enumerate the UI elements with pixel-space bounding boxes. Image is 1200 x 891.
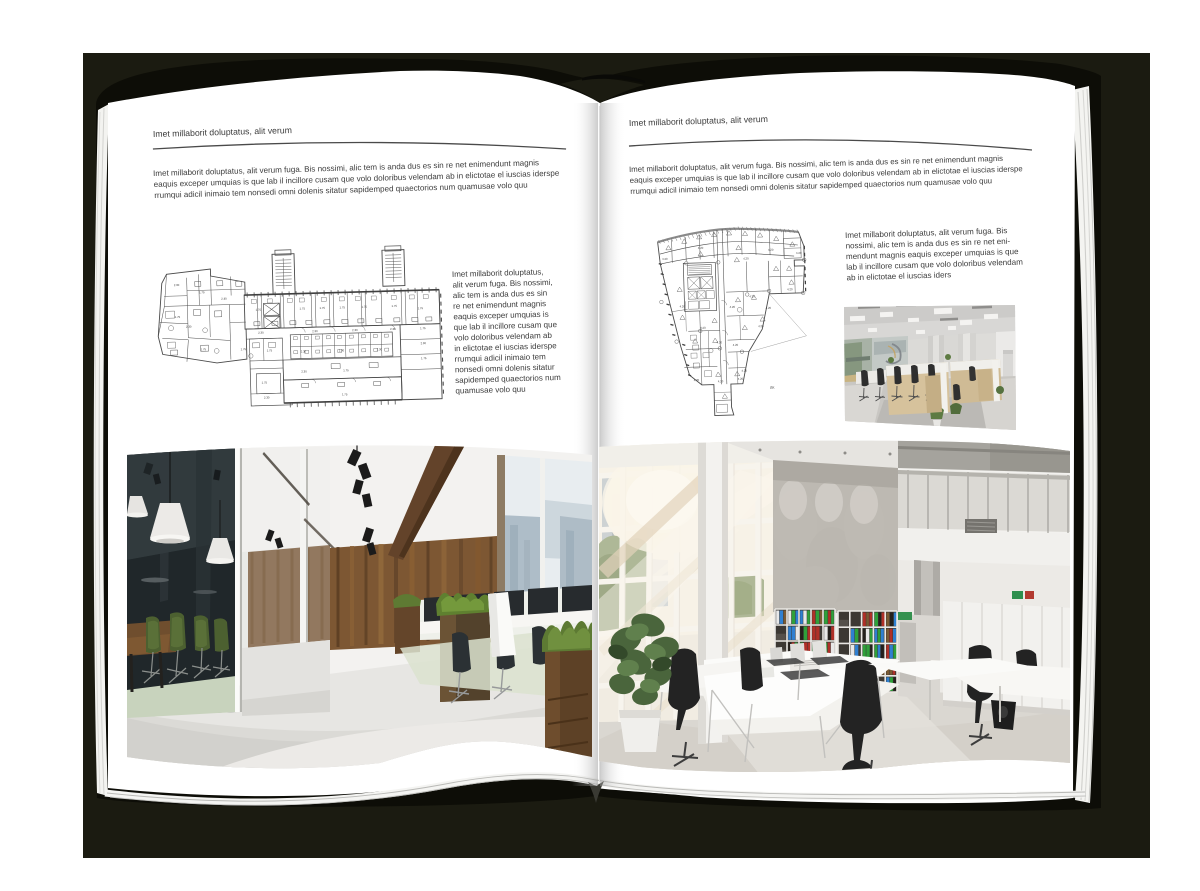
svg-text:4.20: 4.20 xyxy=(694,378,700,382)
svg-text:2.30: 2.30 xyxy=(186,325,192,329)
svg-text:Imet millaborit doluptatus,: Imet millaborit doluptatus, alit verum f… xyxy=(452,267,564,396)
svg-text:1.75: 1.75 xyxy=(342,392,348,396)
svg-text:4.20: 4.20 xyxy=(741,369,747,373)
svg-text:2.30: 2.30 xyxy=(258,331,264,335)
svg-text:1.75: 1.75 xyxy=(241,347,247,351)
svg-text:1.75: 1.75 xyxy=(267,348,273,352)
svg-text:4.20: 4.20 xyxy=(796,251,802,255)
svg-text:1.75: 1.75 xyxy=(255,308,261,312)
svg-text:1.75: 1.75 xyxy=(262,380,268,384)
svg-text:4.20: 4.20 xyxy=(698,246,704,250)
svg-text:2.30: 2.30 xyxy=(301,349,307,353)
svg-text:1.75: 1.75 xyxy=(199,290,205,294)
svg-text:2.30: 2.30 xyxy=(390,327,396,331)
svg-text:2.30: 2.30 xyxy=(420,341,426,345)
svg-text:2.30: 2.30 xyxy=(174,283,180,287)
svg-text:4.20: 4.20 xyxy=(768,248,774,252)
svg-text:2.30: 2.30 xyxy=(301,369,307,373)
svg-text:4.20: 4.20 xyxy=(662,257,668,261)
svg-text:2.30: 2.30 xyxy=(339,348,345,352)
svg-text:1.75: 1.75 xyxy=(421,356,427,360)
svg-text:2.30: 2.30 xyxy=(221,297,227,301)
svg-text:4.20: 4.20 xyxy=(743,256,749,260)
svg-text:1.75: 1.75 xyxy=(420,326,426,330)
svg-text:1.75: 1.75 xyxy=(418,306,424,310)
svg-text:1.75: 1.75 xyxy=(361,305,367,309)
svg-text:4.20: 4.20 xyxy=(700,326,706,330)
svg-text:4.20: 4.20 xyxy=(679,304,685,308)
svg-text:2.30: 2.30 xyxy=(264,395,270,399)
svg-text:4.20: 4.20 xyxy=(730,305,736,309)
svg-text:1.75: 1.75 xyxy=(391,304,397,308)
svg-text:4.20: 4.20 xyxy=(718,379,724,383)
svg-text:1.75: 1.75 xyxy=(175,315,181,319)
svg-text:4.20: 4.20 xyxy=(749,294,755,298)
svg-text:2.30: 2.30 xyxy=(312,329,318,333)
svg-text:4.20: 4.20 xyxy=(738,377,744,381)
svg-text:4.20: 4.20 xyxy=(787,287,793,291)
svg-text:2.30: 2.30 xyxy=(377,347,383,351)
svg-text:4.20: 4.20 xyxy=(766,306,772,310)
svg-text:2.30: 2.30 xyxy=(352,328,358,332)
svg-text:4.20: 4.20 xyxy=(733,343,739,347)
svg-text:1.75: 1.75 xyxy=(201,347,207,351)
svg-text:1.75: 1.75 xyxy=(319,306,325,310)
svg-text:1.75: 1.75 xyxy=(299,306,305,310)
svg-text:1.75: 1.75 xyxy=(343,368,349,372)
svg-text:4.20: 4.20 xyxy=(758,324,764,328)
svg-text:1.75: 1.75 xyxy=(339,305,345,309)
svg-text:4.20: 4.20 xyxy=(717,340,723,344)
